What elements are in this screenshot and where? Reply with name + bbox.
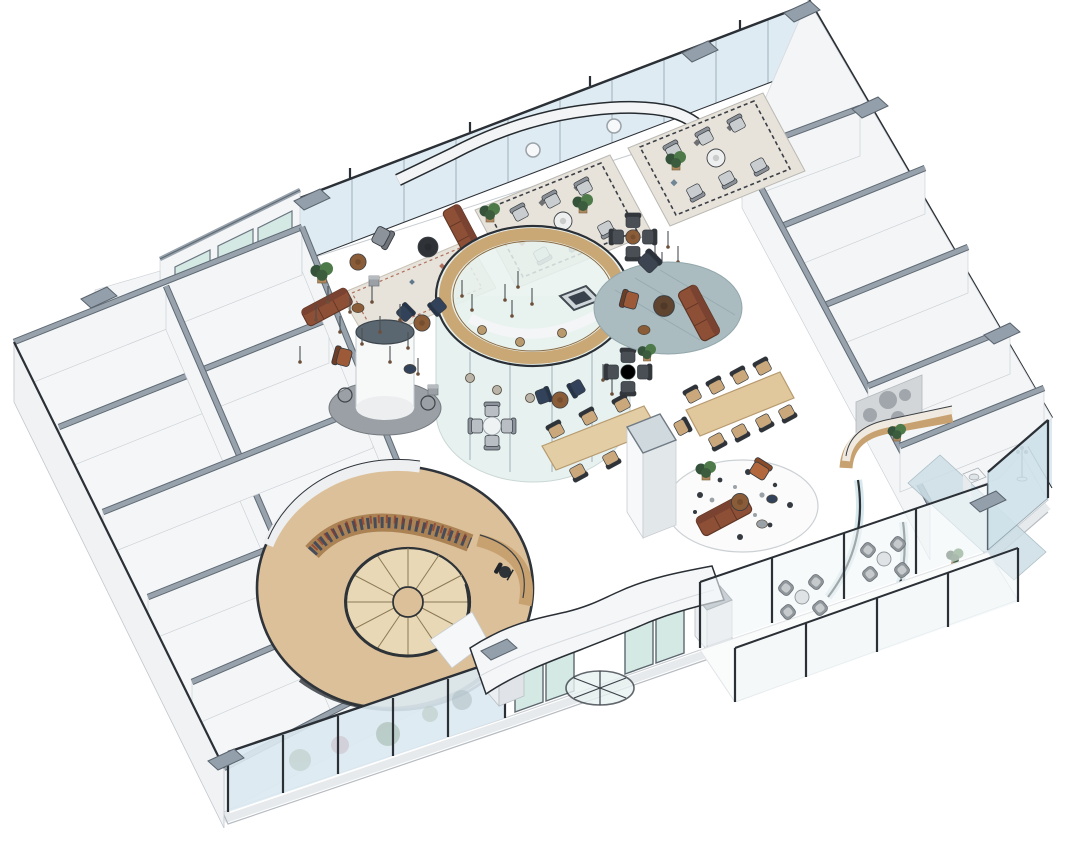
revolving-door [566, 671, 634, 705]
barstool-icon [466, 374, 475, 383]
pouf-icon [757, 520, 768, 528]
cylinder-top [356, 320, 414, 344]
stool-icon [558, 329, 567, 338]
table-icon [621, 365, 635, 379]
pouf-icon [767, 495, 778, 503]
terrace-table-icon [795, 590, 809, 604]
pendant-light-icon [607, 119, 621, 133]
coffee-table-icon [418, 237, 438, 257]
isometric-floorplan [0, 0, 1080, 848]
barstool-icon [526, 394, 535, 403]
table-icon [552, 392, 568, 408]
barstool-icon [493, 386, 502, 395]
glass-table-icon [483, 417, 501, 435]
stool-icon [478, 326, 487, 335]
stool-icon [516, 338, 525, 347]
pouf-icon [638, 325, 650, 334]
table-icon [626, 230, 640, 244]
pendant-light-icon [526, 143, 540, 157]
stool-cube-icon [369, 276, 379, 286]
floorplan-render [0, 0, 1080, 848]
coffee-table-icon [731, 493, 748, 510]
pouf-icon [352, 303, 364, 312]
coffee-table-icon [654, 296, 675, 317]
stool-cube-icon [428, 385, 438, 395]
coffee-table-icon [350, 254, 366, 270]
terrace-table-icon [877, 552, 891, 566]
pouf-icon [404, 364, 416, 373]
side-table-icon [414, 315, 430, 331]
coffee-table-icon [707, 149, 725, 167]
white-pillar [627, 414, 676, 538]
